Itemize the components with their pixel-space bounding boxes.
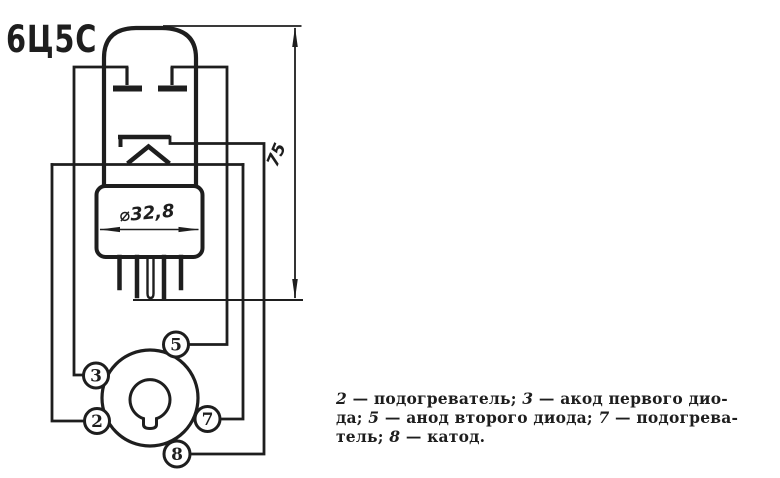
pin-3-label: 3 (90, 367, 102, 387)
electrodes (113, 67, 187, 164)
wire-anode2-to-pin5 (172, 67, 227, 345)
socket-pin-8: 8 (164, 441, 190, 467)
arrowhead-down-icon (292, 279, 298, 299)
arrowhead-right-icon (179, 227, 200, 232)
socket-pin-7: 7 (195, 407, 220, 432)
socket-pin-5: 5 (164, 332, 189, 357)
height-label: 75 (263, 140, 291, 170)
arrowhead-left-icon (100, 227, 121, 232)
heater-chevron (128, 147, 170, 164)
wire-heater-to-pin7 (220, 165, 243, 420)
pin-5-label: 5 (170, 336, 182, 356)
base-pins (120, 257, 182, 298)
pinout-caption: 2 — подогреватель; 3 — акод первого дио-… (336, 389, 780, 446)
pin-2-label: 2 (91, 412, 103, 432)
caption-line: тель; 8 — катод. (336, 427, 780, 446)
tube-envelope (104, 28, 196, 186)
caption-line: 2 — подогреватель; 3 — акод первого дио- (336, 389, 780, 408)
pin-7-label: 7 (202, 410, 214, 430)
arrowhead-up-icon (292, 27, 298, 47)
diameter-dimension: ⌀32,8 (100, 201, 200, 232)
scanned-diagram-page: 6Ц5С (0, 0, 780, 478)
socket-diagram: 5 3 2 7 8 (84, 332, 221, 467)
pin-8-label: 8 (171, 445, 183, 465)
socket-pin-3: 3 (84, 363, 109, 388)
caption-line: да; 5 — анод второго диода; 7 — подогрев… (336, 408, 780, 427)
socket-pin-2: 2 (85, 409, 110, 434)
diameter-label: ⌀32,8 (119, 201, 176, 227)
base-key-spigot (148, 257, 154, 298)
wire-heater-to-pin2 (52, 165, 86, 422)
